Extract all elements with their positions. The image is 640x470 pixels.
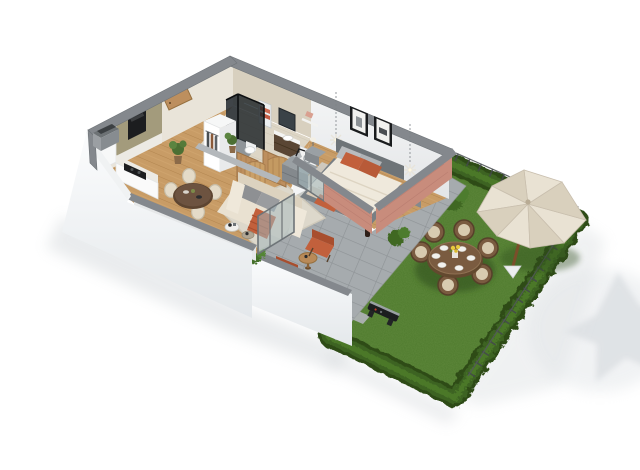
floorplan-svg — [0, 0, 640, 470]
floorplan-render — [0, 0, 640, 470]
dining-table — [173, 183, 213, 209]
parasol-finial — [525, 199, 530, 204]
garden-round-dining-table — [427, 242, 483, 278]
